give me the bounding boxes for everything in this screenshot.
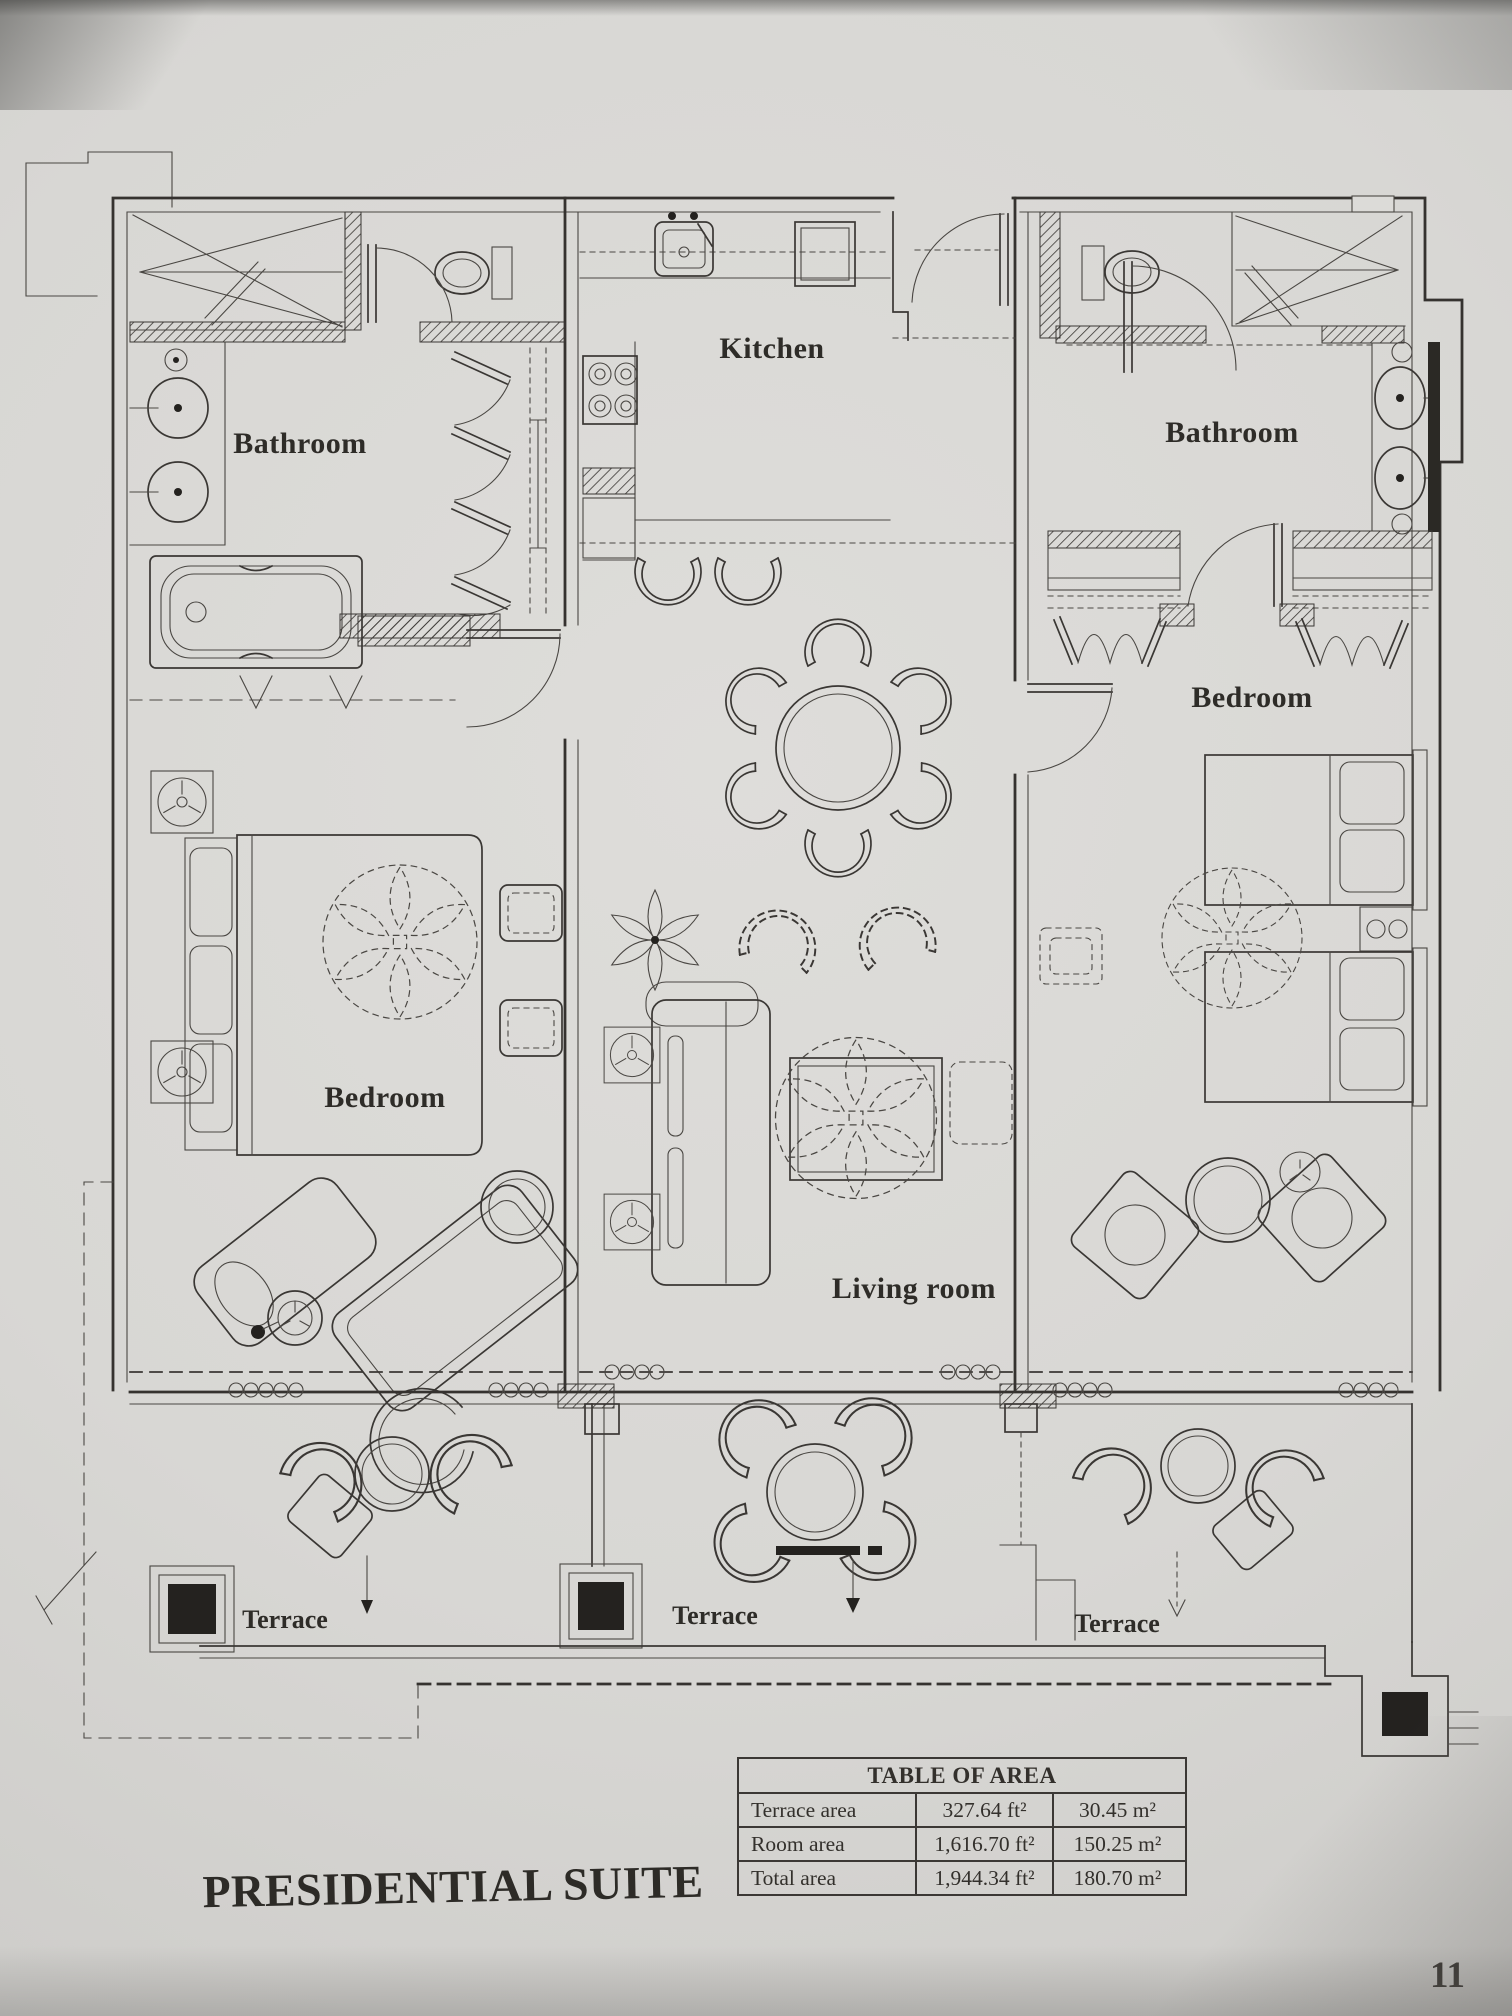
vanity-sinks-left (130, 349, 208, 522)
entry-vestibule (893, 212, 1015, 340)
table-row: Room area 1,616.70 ft² 150.25 m² (739, 1828, 1185, 1862)
bed-right-2 (1205, 948, 1427, 1106)
row-imperial: 1,944.34 ft² (917, 1862, 1054, 1894)
label-bedroom-right: Bedroom (1191, 681, 1312, 714)
ac-unit-dashed (1040, 928, 1102, 984)
label-terrace-right: Terrace (1074, 1609, 1160, 1638)
bedroom-right (1040, 750, 1427, 1303)
armchair-dashed (851, 899, 938, 971)
vanity-sinks-right (1372, 342, 1440, 534)
row-imperial: 1,616.70 ft² (917, 1828, 1054, 1860)
bedroom-left (151, 771, 585, 1493)
row-metric: 150.25 m² (1054, 1828, 1181, 1860)
living-room (604, 890, 1012, 1285)
plant (608, 890, 702, 990)
shower-door (1245, 266, 1298, 325)
sofa (646, 982, 770, 1285)
label-living-room: Living room (832, 1272, 996, 1305)
ceiling-fan (776, 1038, 937, 1199)
wall-fan-unit (151, 771, 213, 833)
bar-stool (715, 558, 781, 605)
toilet-left (435, 247, 512, 299)
wardrobes-right (1048, 524, 1432, 668)
terrace-band (36, 1182, 1478, 1756)
row-label: Total area (739, 1862, 917, 1894)
lounge-chair (1067, 1167, 1202, 1302)
dining-area (714, 619, 964, 876)
toilet-right (1082, 246, 1159, 300)
floor-lamp (251, 1291, 322, 1345)
bar-stool (635, 558, 701, 605)
row-label: Room area (739, 1828, 917, 1860)
label-bedroom-left: Bedroom (324, 1081, 445, 1114)
photographed-floorplan-page: Bathroom Kitchen Bathroom Bedroom Bedroo… (0, 0, 1512, 2016)
table-row: Terrace area 327.64 ft² 30.45 m² (739, 1794, 1185, 1828)
terrace-column-bottom-right (1325, 1642, 1478, 1756)
label-bathroom-left: Bathroom (233, 427, 366, 460)
stove (583, 356, 637, 424)
ceiling-fan (1162, 868, 1302, 1008)
room-labels: Bathroom Kitchen Bathroom Bedroom Bedroo… (233, 332, 1312, 1638)
ceiling-fan (323, 865, 477, 1019)
lounge-chair (1254, 1150, 1390, 1286)
kitchen (580, 212, 1015, 605)
label-kitchen: Kitchen (719, 332, 824, 365)
terrace-chair (1070, 1432, 1167, 1526)
label-terrace-left: Terrace (242, 1605, 328, 1634)
kitchen-sink (655, 212, 713, 276)
area-table: TABLE OF AREA Terrace area 327.64 ft² 30… (737, 1757, 1187, 1896)
page-title: PRESIDENTIAL SUITE (198, 1855, 709, 1919)
page-number: 11 (1430, 1954, 1465, 1997)
interior-dividers (467, 198, 1112, 1390)
daybed (325, 1178, 585, 1418)
area-table-title: TABLE OF AREA (739, 1759, 1185, 1794)
row-label: Terrace area (739, 1794, 917, 1826)
armchair-dashed (737, 902, 824, 974)
side-table-dashed (950, 1062, 1012, 1144)
nightstand (1360, 907, 1412, 951)
wall-fan-unit (151, 1041, 213, 1103)
refrigerator (795, 222, 855, 286)
bathtub (150, 556, 362, 668)
terrace-chair (1230, 1434, 1326, 1529)
table-row: Total area 1,944.34 ft² 180.70 m² (739, 1862, 1185, 1894)
terrace-chair (833, 1382, 928, 1478)
terrace-column-center (560, 1564, 642, 1648)
row-metric: 180.70 m² (1054, 1862, 1181, 1894)
label-terrace-center: Terrace (672, 1601, 758, 1630)
closet-corridor-left (340, 348, 546, 638)
chaise-lounge (186, 1170, 384, 1354)
bathroom-right (1040, 196, 1440, 534)
bed-right-1 (1205, 750, 1427, 910)
row-imperial: 327.64 ft² (917, 1794, 1054, 1826)
terrace-column-left (150, 1566, 234, 1652)
terrace-chair (703, 1384, 798, 1480)
row-metric: 30.45 m² (1054, 1794, 1181, 1826)
label-bathroom-right: Bathroom (1165, 416, 1298, 449)
floor-plan-drawing: Bathroom Kitchen Bathroom Bedroom Bedroo… (0, 0, 1512, 2016)
